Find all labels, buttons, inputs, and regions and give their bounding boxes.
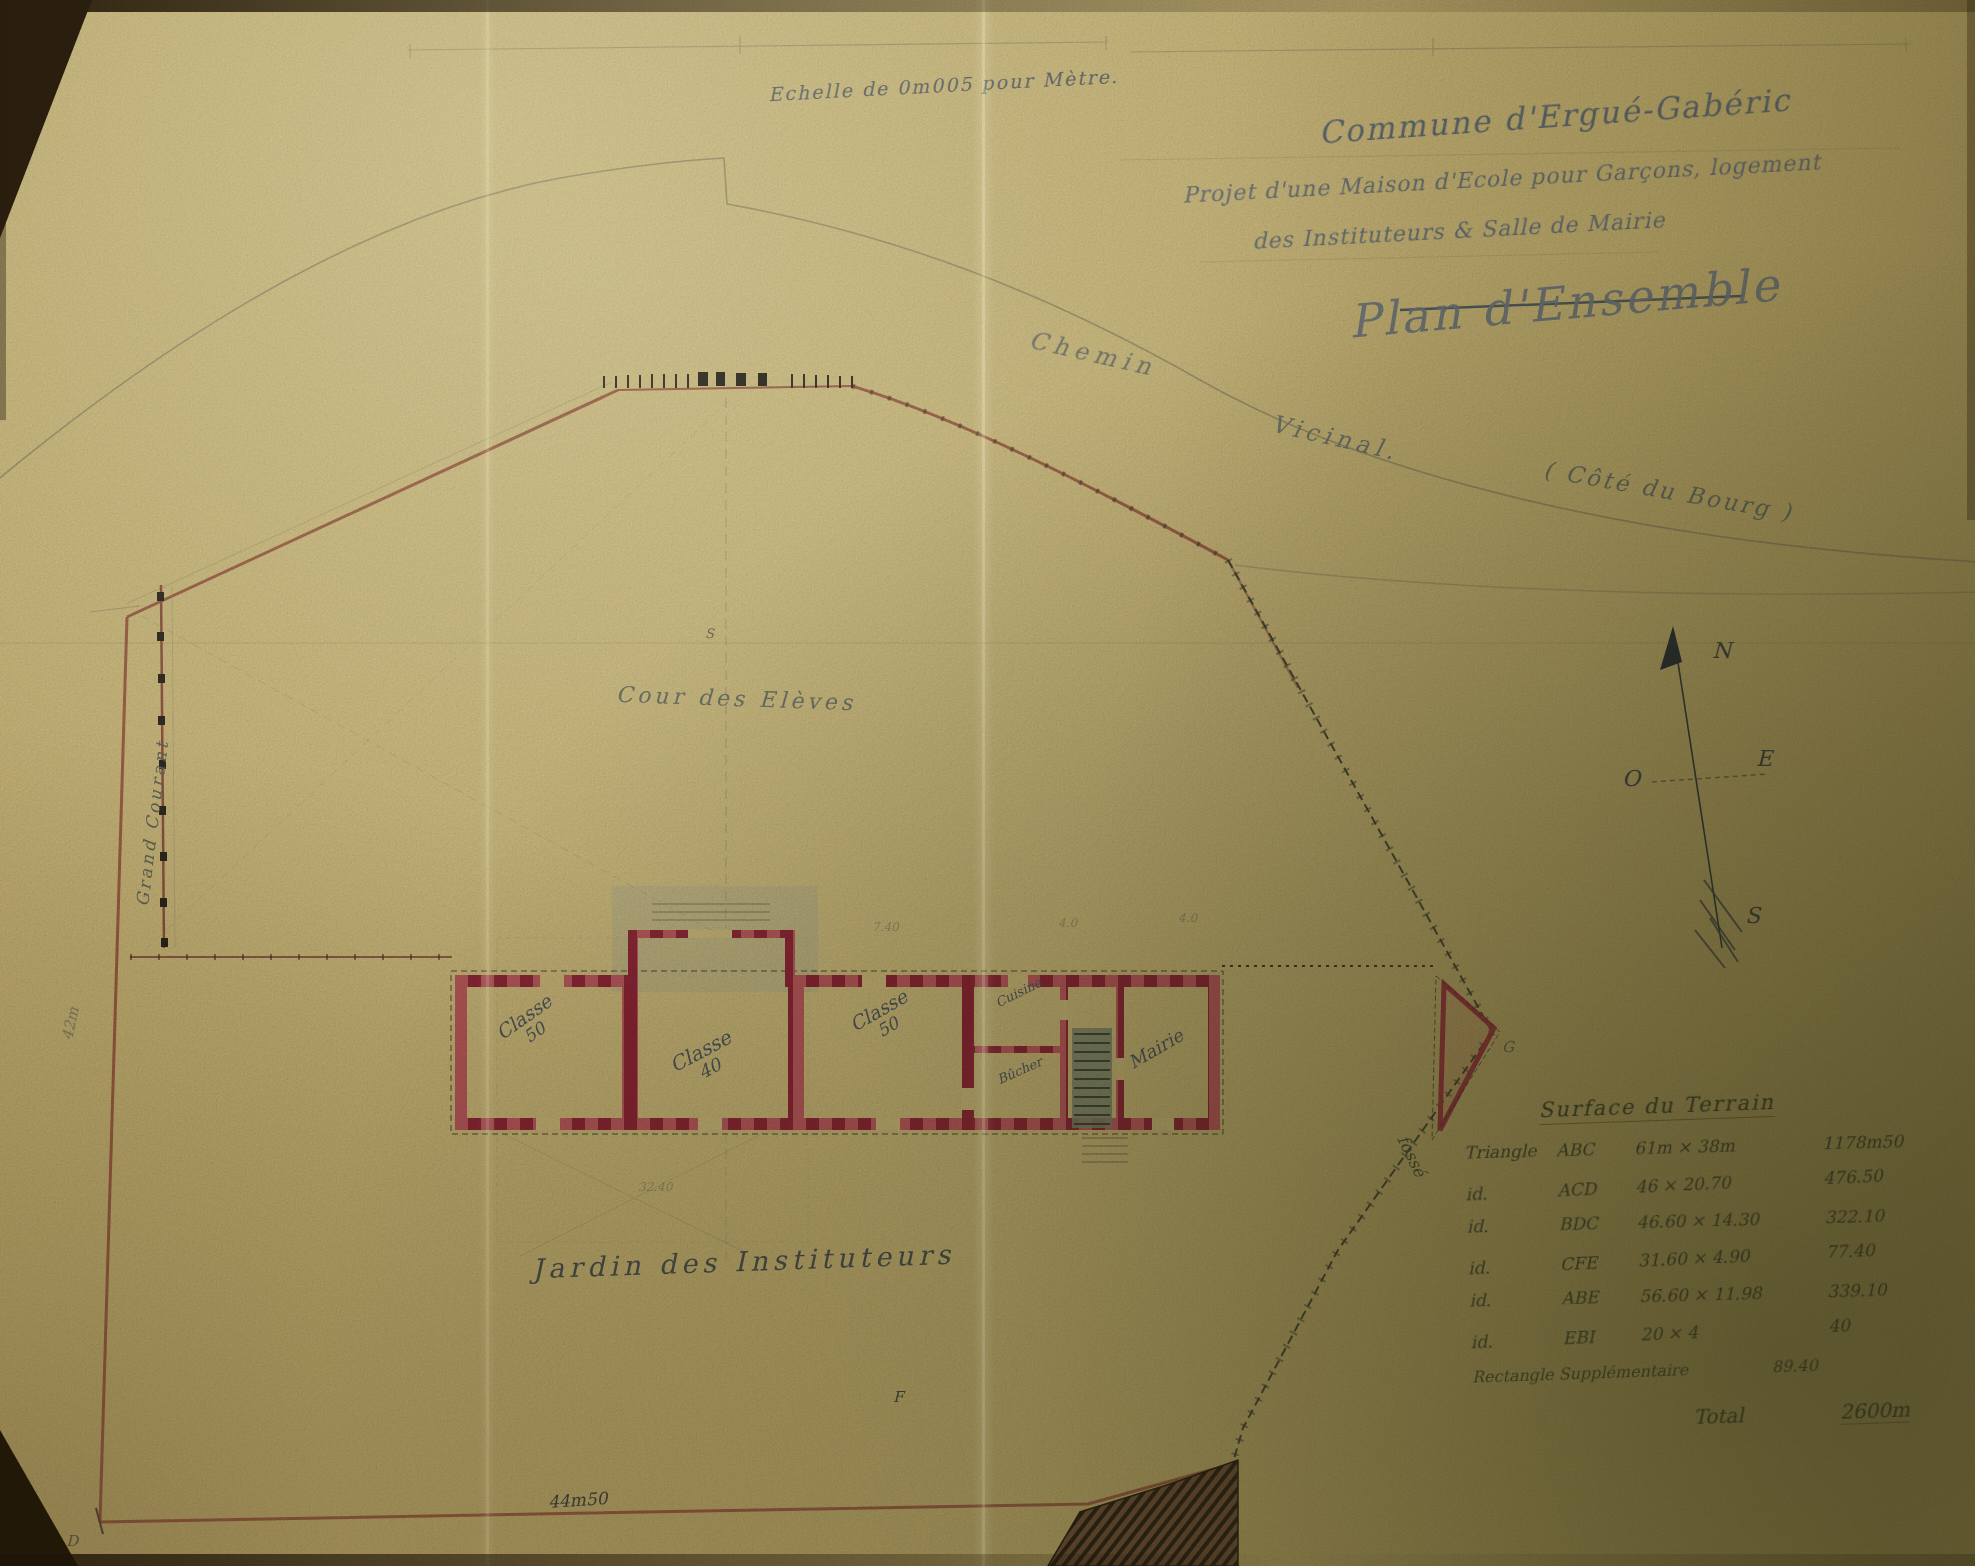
row-triangle: BDC [1558,1212,1636,1234]
row-triangle: ABE [1561,1286,1639,1308]
row-kind: id. [1469,1288,1561,1310]
photo-edge-right [1967,0,1975,520]
scanned-site-plan: Echelle de 0m005 pour Mètre. Commune d'E… [0,0,1975,1566]
divider-lines [130,957,1436,966]
gate-marks [604,372,852,388]
row-value: 476.50 [1823,1162,1966,1188]
dimension-bottom-width: 44m50 [547,1488,608,1512]
table-row: id. ACD 46 × 20.70 476.50 [1465,1162,1965,1205]
label-ditch: fossé [1393,1132,1430,1180]
compass-north-label: N [1712,638,1731,663]
room-label-classe-1: Classe 50 [493,991,566,1058]
table-row: id. EBI 20 × 4 40 [1470,1310,1970,1353]
plot-boundary [96,386,1232,1534]
room-name: Mairie [1124,1025,1186,1073]
point-marker-f: F [893,1388,903,1406]
ditch-hedge-lines [1228,560,1492,1462]
extra-value: 89.40 [1771,1356,1817,1377]
row-value: 77.40 [1825,1236,1968,1262]
photo-edge-top [0,0,1975,12]
row-triangle: EBI [1562,1325,1641,1349]
photo-edge-left [0,0,6,420]
room-label-cuisine: Cuisine [994,976,1044,1010]
extra-label: Rectangle Supplémentaire [1472,1357,1772,1386]
row-formula: 56.60 × 11.98 [1639,1281,1827,1306]
dimension-3240: 32.40 [638,1180,672,1194]
row-value: 1178m50 [1822,1130,1964,1154]
point-marker-s: S [705,626,714,641]
photo-corner-top-left [0,0,92,238]
porch-wash [612,886,818,992]
photo-edge-bottom [0,1554,1975,1566]
room-name: Cuisine [993,975,1044,1010]
table-row: Triangle ABC 61m × 38m 1178m50 [1464,1130,1964,1163]
label-courtyard: Cour des Elèves [616,682,857,715]
point-marker-g: G [1502,1038,1514,1056]
label-stream: Grand Courant [132,738,172,907]
paper-fold [982,0,985,1566]
table-row: id. ABE 56.60 × 11.98 339.10 [1469,1277,1969,1310]
table-row: id. BDC 46.60 × 14.30 322.10 [1466,1203,1966,1236]
row-kind: id. [1468,1254,1561,1278]
table-row: id. CFE 31.60 × 4.90 77.40 [1468,1236,1968,1279]
room-label-bucher: Bûcher [995,1055,1044,1087]
row-triangle: ABC [1556,1138,1634,1160]
surface-table-title: Surface du Terrain [1538,1090,1775,1125]
label-road-vicinal: Vicinal. [1269,410,1403,467]
row-kind: id. [1466,1214,1558,1236]
compass-east-label: E [1756,746,1772,771]
table-extra-row: Rectangle Supplémentaire 89.40 [1472,1350,1972,1386]
row-kind: Triangle [1464,1140,1556,1162]
dimension-40a: 4.0 [1058,916,1077,930]
compass-south-label: S [1745,903,1760,928]
row-kind: id. [1470,1328,1563,1352]
paper-fold [486,0,489,1566]
label-road-side: ( Côté du Bourg ) [1542,456,1796,526]
title-plan-name: Plan d'Ensemble [1346,257,1783,349]
room-label-mairie: Mairie [1125,1026,1186,1072]
scale-note: Echelle de 0m005 pour Mètre. [768,65,1120,105]
paper-crease [0,642,1975,644]
label-garden: Jardin des Instituteurs [532,1239,956,1285]
school-building [451,904,1223,1162]
room-label-classe-3: Classe 50 [847,987,920,1051]
total-label: Total [1693,1403,1744,1429]
row-formula: 46.60 × 14.30 [1636,1207,1824,1232]
title-commune: Commune d'Ergué-Gabéric [1317,82,1792,151]
dimension-740: 7.40 [872,920,899,934]
title-line3: des Instituteurs & Salle de Mairie [1252,207,1666,254]
dimension-40b: 4.0 [1178,911,1197,925]
total-value: 2600m [1840,1397,1911,1424]
row-formula: 61m × 38m [1634,1133,1822,1158]
compass-west-label: O [1622,766,1640,791]
room-label-classe-2: Classe 40 [666,1027,743,1093]
table-total-row: Total 2600m [1473,1395,1974,1436]
dimension-left-height: 42m [58,1005,83,1041]
room-name: Bûcher [995,1054,1044,1087]
row-kind: id. [1465,1180,1558,1204]
road-curves [0,158,1975,604]
row-formula: 46 × 20.70 [1635,1168,1824,1197]
row-formula: 31.60 × 4.90 [1638,1242,1827,1271]
label-road-chemin: Chemin [1027,326,1160,383]
row-formula: 20 × 4 [1640,1316,1829,1345]
row-triangle: CFE [1560,1251,1639,1275]
hatched-crossing [1048,1460,1238,1566]
point-marker-d: D [66,1532,78,1550]
surface-table: Surface du Terrain Triangle ABC 61m × 38… [1462,1083,1973,1436]
row-value: 322.10 [1824,1203,1966,1227]
row-triangle: ACD [1557,1177,1636,1201]
row-value: 40 [1828,1310,1971,1336]
title-line2: Projet d'une Maison d'Ecole pour Garçons… [1182,149,1822,207]
row-value: 339.10 [1827,1277,1969,1301]
pencil-axes [140,398,808,1268]
